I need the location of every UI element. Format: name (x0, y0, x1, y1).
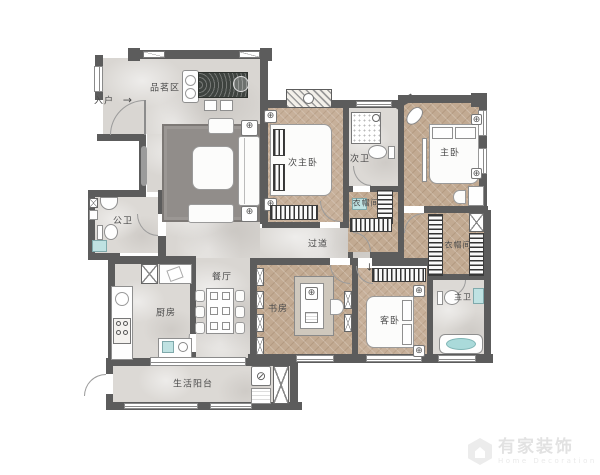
kitchen-sink (162, 341, 174, 353)
master-side-table (468, 186, 484, 206)
wall-closet-top-bottom-a (348, 252, 353, 258)
wall-kitchen-top (108, 256, 196, 264)
wall-mbath-right (484, 274, 491, 362)
pbath-shower (92, 240, 107, 252)
label-closet-top: 衣帽间 (353, 198, 380, 209)
wall-study-top-a (250, 258, 330, 265)
wall-entry-jog-h (97, 134, 145, 141)
coffee-table (192, 146, 234, 190)
bookshelf-3 (256, 314, 264, 332)
wall-closet-top-bottom-b (370, 252, 398, 258)
tv (141, 146, 147, 186)
wall-secbath-right (398, 95, 404, 258)
study-lamp: ⊕ (305, 287, 318, 300)
plate-4 (222, 307, 230, 315)
balcony-cabinet (273, 366, 289, 404)
plate-6 (222, 322, 230, 330)
tea-stool-b (220, 100, 233, 111)
window-secbath (356, 101, 392, 107)
label-balcony: 生活阳台 (173, 377, 213, 390)
tea-cart-plate (185, 75, 196, 86)
guest-nightstand-top: ⊕ (413, 285, 425, 297)
wall-study-guest (352, 262, 358, 358)
corridor-down-arrow-icon: ↓ (365, 263, 374, 274)
wall-balcony-left-a (106, 358, 113, 374)
tea-tray (233, 76, 249, 92)
window-tea-right (239, 51, 260, 58)
tea-cart-plate2 (185, 88, 196, 99)
master-bench (422, 138, 427, 182)
wall-sec-secbath (343, 103, 349, 225)
plate-2 (222, 292, 230, 300)
wall-pbath-top (88, 190, 146, 197)
kettle (178, 342, 188, 352)
window-entry-side (94, 66, 103, 92)
plate-3 (210, 307, 218, 315)
sec-nightstand-top: ⊕ (264, 110, 277, 123)
label-study: 书房 (268, 302, 288, 315)
guest-wardrobe (372, 268, 426, 282)
chair-l1 (195, 290, 205, 302)
wall-post-tl (128, 48, 140, 61)
label-tea-area: 品茗区 (150, 81, 180, 94)
window-study (296, 355, 334, 362)
watermark: 有家装饰 Home Decoration (468, 438, 597, 465)
label-entry: 入户 (94, 94, 114, 107)
chair-r2 (235, 306, 245, 318)
side-table-lamp-bottom: ⊕ (241, 206, 258, 222)
fridge (141, 264, 158, 284)
label-secondary-bath: 次卫 (350, 152, 370, 165)
label-closet-right: 衣帽间 (445, 240, 472, 251)
label-secondary-master: 次主卧 (288, 156, 318, 169)
chair-l2 (195, 306, 205, 318)
burner-4 (123, 330, 128, 335)
chair-r3 (235, 322, 245, 334)
label-corridor: 过道 (308, 237, 328, 250)
label-master-bath: 主卫 (454, 292, 472, 303)
label-public-bath: 公卫 (113, 214, 133, 227)
closet-right-wardrobe-left (428, 214, 443, 276)
armchair-top (208, 118, 234, 134)
mbath-toilet-tank (437, 291, 443, 305)
master-pillow-a (432, 127, 453, 139)
sec-pillow-a (273, 129, 285, 156)
burner-2 (123, 321, 128, 326)
mbath-sink (473, 288, 484, 304)
floor-plan: ⊕ ⊕ ⊘ ⊕ ⊕ (0, 0, 600, 475)
side-table-lamp-top: ⊕ (241, 120, 258, 136)
pbath-washer (89, 198, 98, 208)
guest-pillow-a (402, 300, 412, 321)
sofa (238, 136, 260, 206)
bathtub-water (446, 338, 476, 350)
chair-l3 (195, 322, 205, 334)
door-arc-balcony (84, 374, 106, 396)
label-dining: 餐厅 (212, 270, 232, 283)
secbath-toilet-bowl (368, 145, 387, 159)
window-tea-left (143, 51, 165, 58)
master-sconce-a: ⊕ (471, 114, 482, 125)
wall-closet-right (484, 210, 491, 278)
loveseat (188, 204, 234, 223)
plate-5 (210, 322, 218, 330)
secbath-shower-head (372, 114, 380, 122)
closet-top-wardrobe-h (350, 218, 392, 232)
plate-1 (210, 292, 218, 300)
watermark-brand: 有家装饰 (498, 439, 597, 456)
wall-master-bottom (424, 206, 488, 213)
pbath-toilet-tank (97, 225, 103, 240)
master-pillow-b (455, 127, 476, 139)
wall-sec-bottom-a (262, 222, 320, 228)
study-chair (330, 299, 344, 315)
sec-pillow-b (273, 164, 285, 191)
bookshelf-1 (256, 268, 264, 286)
kitchen-sink-round (115, 292, 129, 306)
entry-arrow-icon: → (123, 94, 133, 107)
laptop (305, 312, 318, 323)
chair-r1 (235, 290, 245, 302)
window-master-bath (438, 355, 476, 362)
burner-1 (116, 321, 121, 326)
wall-secbath-bottom-a (348, 186, 353, 192)
guest-nightstand-bottom: ⊕ (413, 345, 425, 357)
door-leaf-entry (144, 100, 146, 135)
closet-right-cabinet (469, 213, 484, 232)
slider-balcony (150, 357, 246, 366)
label-master-bedroom: 主卧 (440, 146, 460, 159)
tea-stool-a (204, 100, 217, 111)
window-balcony-b (210, 403, 252, 409)
watermark-subtitle: Home Decoration (498, 458, 597, 465)
bookshelf-4 (256, 337, 264, 355)
bookshelf-2 (256, 291, 264, 309)
wall-balcony-right (290, 360, 298, 410)
bookshelf-5 (344, 291, 352, 309)
ac-glyph (303, 93, 314, 104)
sofa-cushion-line (244, 138, 245, 204)
label-kitchen: 厨房 (156, 306, 176, 319)
wall-guest-top (372, 258, 433, 266)
bookshelf-6 (344, 314, 352, 332)
washing-machine: ⊘ (251, 366, 271, 386)
master-sconce-b: ⊕ (471, 168, 482, 179)
laundry-cabinet (251, 388, 271, 404)
watermark-logo-icon (468, 438, 492, 465)
window-balcony-a (124, 403, 198, 409)
pbath-cabinet (89, 210, 98, 220)
sec-wardrobe (270, 205, 318, 220)
secbath-toilet-tank (388, 146, 395, 159)
burner-3 (116, 330, 121, 335)
master-chair (453, 190, 466, 204)
label-guest-bedroom: 客卧 (380, 314, 400, 327)
guest-pillow-b (402, 324, 412, 345)
